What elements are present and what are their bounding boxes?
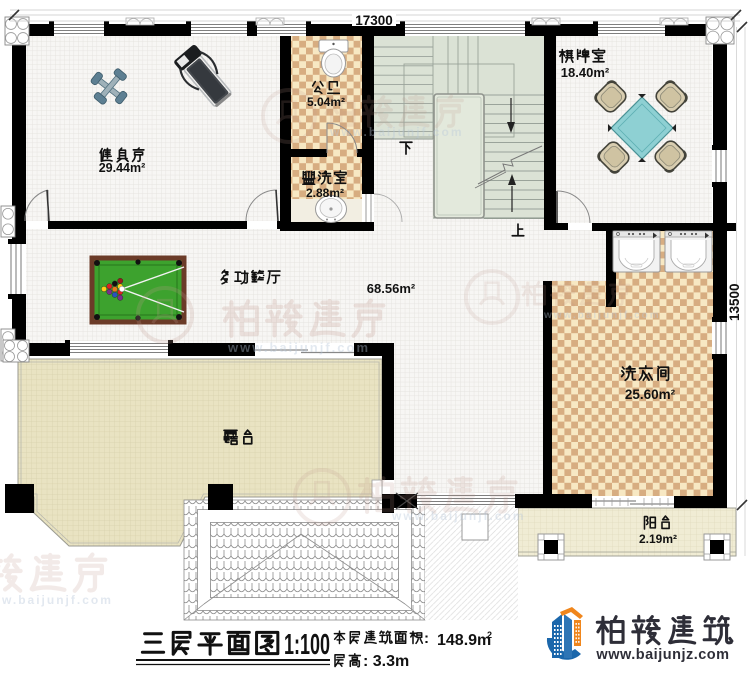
svg-text:68.56m²: 68.56m² xyxy=(367,281,416,296)
svg-text:www.baijunjf.com: www.baijunjf.com xyxy=(391,509,526,523)
svg-text:w.baijunjf.com: w.baijunjf.com xyxy=(1,593,113,607)
svg-text:www.baijunjf.com: www.baijunjf.com xyxy=(543,310,661,321)
svg-text:148.9m: 148.9m xyxy=(437,632,491,649)
svg-text:1:100: 1:100 xyxy=(284,629,330,661)
svg-text:17300: 17300 xyxy=(355,13,393,28)
svg-text:18.40m²: 18.40m² xyxy=(561,65,610,80)
svg-text:2: 2 xyxy=(487,630,492,640)
svg-text:: 3.3m: : 3.3m xyxy=(363,653,409,670)
svg-text:29.44m²: 29.44m² xyxy=(99,161,146,175)
svg-text:www.baijunjz.com: www.baijunjz.com xyxy=(595,647,729,663)
svg-text:25.60m²: 25.60m² xyxy=(625,387,676,402)
svg-text:13500: 13500 xyxy=(727,283,742,321)
svg-text:2.19m²: 2.19m² xyxy=(639,532,677,546)
svg-text:5.04m²: 5.04m² xyxy=(307,95,345,109)
svg-text:www.baijunjf.com: www.baijunjf.com xyxy=(227,340,370,355)
svg-text:www.baijunjf.com: www.baijunjf.com xyxy=(329,125,464,139)
svg-text:2.88m²: 2.88m² xyxy=(306,186,344,200)
svg-text::: : xyxy=(424,630,429,647)
